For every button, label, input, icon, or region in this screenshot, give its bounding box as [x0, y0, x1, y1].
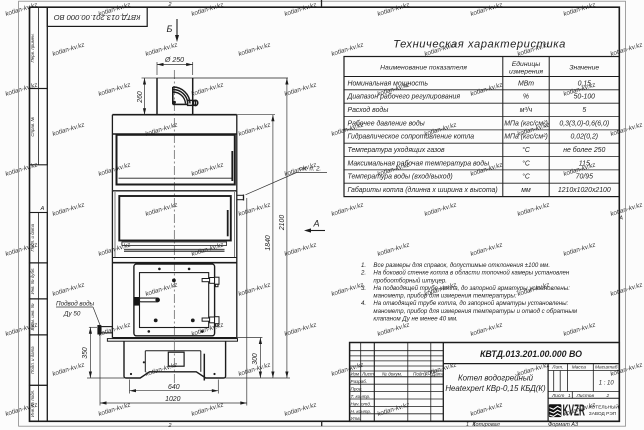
- svg-text:Рабочее давление воды: Рабочее давление воды: [348, 119, 425, 127]
- svg-text:На боковой стенке котла в обла: На боковой стенке котла в области топочн…: [373, 270, 570, 277]
- svg-text:Перв. примен.: Перв. примен.: [30, 33, 35, 62]
- svg-text:Подп. и дата: Подп. и дата: [30, 223, 35, 251]
- svg-text:А: А: [40, 206, 45, 212]
- svg-text:Утв.: Утв.: [351, 416, 361, 421]
- svg-text:манометр, прибор для измерения: манометр, прибор для измерения температу…: [373, 308, 578, 315]
- svg-text:клапаном Ду не менее 40 мм.: клапаном Ду не менее 40 мм.: [373, 315, 457, 322]
- svg-text:640: 640: [168, 384, 180, 391]
- svg-text:Ду 50: Ду 50: [63, 311, 81, 318]
- svg-text:см. п. 2.: см. п. 2.: [299, 167, 321, 173]
- svg-text:Диапазон рабочего регулировани: Диапазон рабочего регулирования: [347, 93, 461, 101]
- svg-text:°С: °С: [522, 146, 531, 154]
- svg-text:Ø 250: Ø 250: [164, 57, 184, 64]
- svg-text:Пров.: Пров.: [351, 387, 363, 392]
- svg-text:А: А: [618, 216, 623, 222]
- svg-text:0,3(3,0)-0,6(6,0): 0,3(3,0)-0,6(6,0): [559, 120, 609, 127]
- svg-text:На отводящей трубе котла, до з: На отводящей трубе котла, до запорной ар…: [373, 300, 568, 307]
- svg-text:Максимальная рабочая температу: Максимальная рабочая температура воды: [348, 159, 490, 167]
- svg-text:Все размеры для справок, допус: Все размеры для справок, допустимые откл…: [373, 262, 550, 269]
- svg-text:70/95: 70/95: [576, 174, 593, 181]
- svg-text:МПа (кгс/см²): МПа (кгс/см²): [504, 134, 547, 141]
- svg-text:Инв. № подл.: Инв. № подл.: [30, 390, 35, 417]
- svg-text:2.: 2.: [360, 270, 366, 277]
- svg-text:№ докум.: № докум.: [382, 372, 402, 377]
- svg-text:Формат А3: Формат А3: [548, 422, 579, 428]
- svg-text:2100: 2100: [279, 215, 286, 231]
- svg-text:%: %: [523, 94, 529, 101]
- svg-text:4.: 4.: [361, 300, 366, 307]
- svg-text:1020: 1020: [165, 396, 180, 403]
- svg-text:Габариты котла (длинна х ширин: Габариты котла (длинна х ширина х высота…: [348, 186, 498, 194]
- svg-text:Инв. № дубл.: Инв. № дубл.: [30, 267, 35, 294]
- svg-text:°С: °С: [522, 159, 531, 167]
- svg-text:Справ. №: Справ. №: [30, 116, 35, 136]
- svg-text:Взам. инв. №: Взам. инв. №: [30, 303, 35, 330]
- svg-text:1840: 1840: [265, 235, 272, 250]
- svg-text:0,02(0,2): 0,02(0,2): [571, 134, 599, 141]
- svg-text:KVZR: KVZR: [563, 403, 586, 420]
- svg-text:А: А: [313, 219, 320, 229]
- svg-text:Масса: Масса: [572, 365, 587, 371]
- svg-text:3.: 3.: [361, 285, 366, 292]
- svg-text:Котел водогрейный: Котел водогрейный: [458, 373, 534, 382]
- svg-text:Температура воды (вход/выход): Температура воды (вход/выход): [348, 173, 453, 181]
- svg-text:пробоотборный штуцер.: пробоотборный штуцер.: [373, 278, 447, 285]
- svg-text:Подп.: Подп.: [413, 372, 425, 377]
- svg-text:мм: мм: [521, 187, 531, 194]
- svg-text:300: 300: [252, 353, 259, 365]
- svg-text:Нач. отд.: Нач. отд.: [351, 401, 372, 406]
- svg-text:50-100: 50-100: [574, 94, 596, 101]
- svg-text:Разраб.: Разраб.: [351, 379, 368, 384]
- svg-text:260: 260: [137, 91, 144, 104]
- svg-text:Б: Б: [167, 24, 173, 34]
- svg-text:Лит.: Лит.: [551, 365, 563, 371]
- svg-text:не более 250: не более 250: [563, 146, 605, 154]
- svg-text:ЗАВОД РЭП: ЗАВОД РЭП: [589, 411, 617, 417]
- svg-text:Дата: Дата: [431, 372, 445, 377]
- svg-text:Копировал: Копировал: [472, 422, 499, 428]
- svg-text:Техническая характеристика: Техническая характеристика: [393, 39, 566, 51]
- svg-text:Значение: Значение: [569, 64, 599, 71]
- svg-text:Наименование показателя: Наименование показателя: [380, 64, 467, 71]
- svg-text:м³/ч: м³/ч: [520, 107, 533, 114]
- svg-text:1 : 10: 1 : 10: [599, 381, 615, 387]
- svg-text:0,15: 0,15: [578, 80, 592, 87]
- svg-text:115: 115: [579, 160, 590, 167]
- svg-text:Подвод воды: Подвод воды: [56, 300, 95, 308]
- svg-text:1.: 1.: [361, 262, 366, 269]
- svg-text:Номинальная мощность: Номинальная мощность: [348, 80, 429, 87]
- svg-text:1: 1: [466, 422, 469, 428]
- svg-text:Расход воды: Расход воды: [348, 106, 389, 114]
- svg-text:Температура уходящих газов: Температура уходящих газов: [348, 146, 446, 154]
- svg-text:измерения: измерения: [509, 68, 543, 75]
- svg-text:°С: °С: [522, 173, 531, 181]
- svg-text:Лист: Лист: [361, 372, 374, 377]
- svg-text:На подводящей трубе котла, до: На подводящей трубе котла, до запорной а…: [373, 285, 570, 292]
- svg-text:2: 2: [168, 423, 172, 429]
- svg-text:Н. контр.: Н. контр.: [351, 409, 372, 414]
- svg-text:1210х1020х2100: 1210х1020х2100: [558, 187, 611, 194]
- svg-text:2: 2: [168, 2, 172, 8]
- svg-text:Листов: Листов: [576, 393, 595, 399]
- svg-text:2: 2: [606, 393, 610, 399]
- svg-text:Гидравлическое сопротивление к: Гидравлическое сопротивление котла: [348, 133, 475, 141]
- svg-text:Изм: Изм: [351, 372, 360, 377]
- svg-text:МВт: МВт: [518, 80, 534, 87]
- svg-text:Heatexpert КВр-0,15 КБД(К): Heatexpert КВр-0,15 КБД(К): [445, 384, 546, 393]
- svg-text:Масштаб: Масштаб: [595, 365, 618, 371]
- svg-text:1: 1: [568, 393, 571, 399]
- svg-text:МПа (кгс/см²): МПа (кгс/см²): [504, 120, 547, 127]
- svg-text:350: 350: [82, 347, 89, 359]
- svg-text:Лист: Лист: [551, 393, 564, 399]
- svg-text:КВТД.013.201.00.000 ВО: КВТД.013.201.00.000 ВО: [54, 13, 141, 22]
- svg-text:5: 5: [582, 107, 586, 114]
- svg-text:Единицы: Единицы: [512, 60, 540, 68]
- svg-text:Подп. и дата: Подп. и дата: [30, 346, 35, 374]
- svg-text:манометр, прибор для измерения: манометр, прибор для измерения температу…: [373, 293, 517, 300]
- svg-text:КВТД.013.201.00.000 ВО: КВТД.013.201.00.000 ВО: [480, 349, 582, 359]
- svg-text:Т. контр.: Т. контр.: [351, 394, 371, 399]
